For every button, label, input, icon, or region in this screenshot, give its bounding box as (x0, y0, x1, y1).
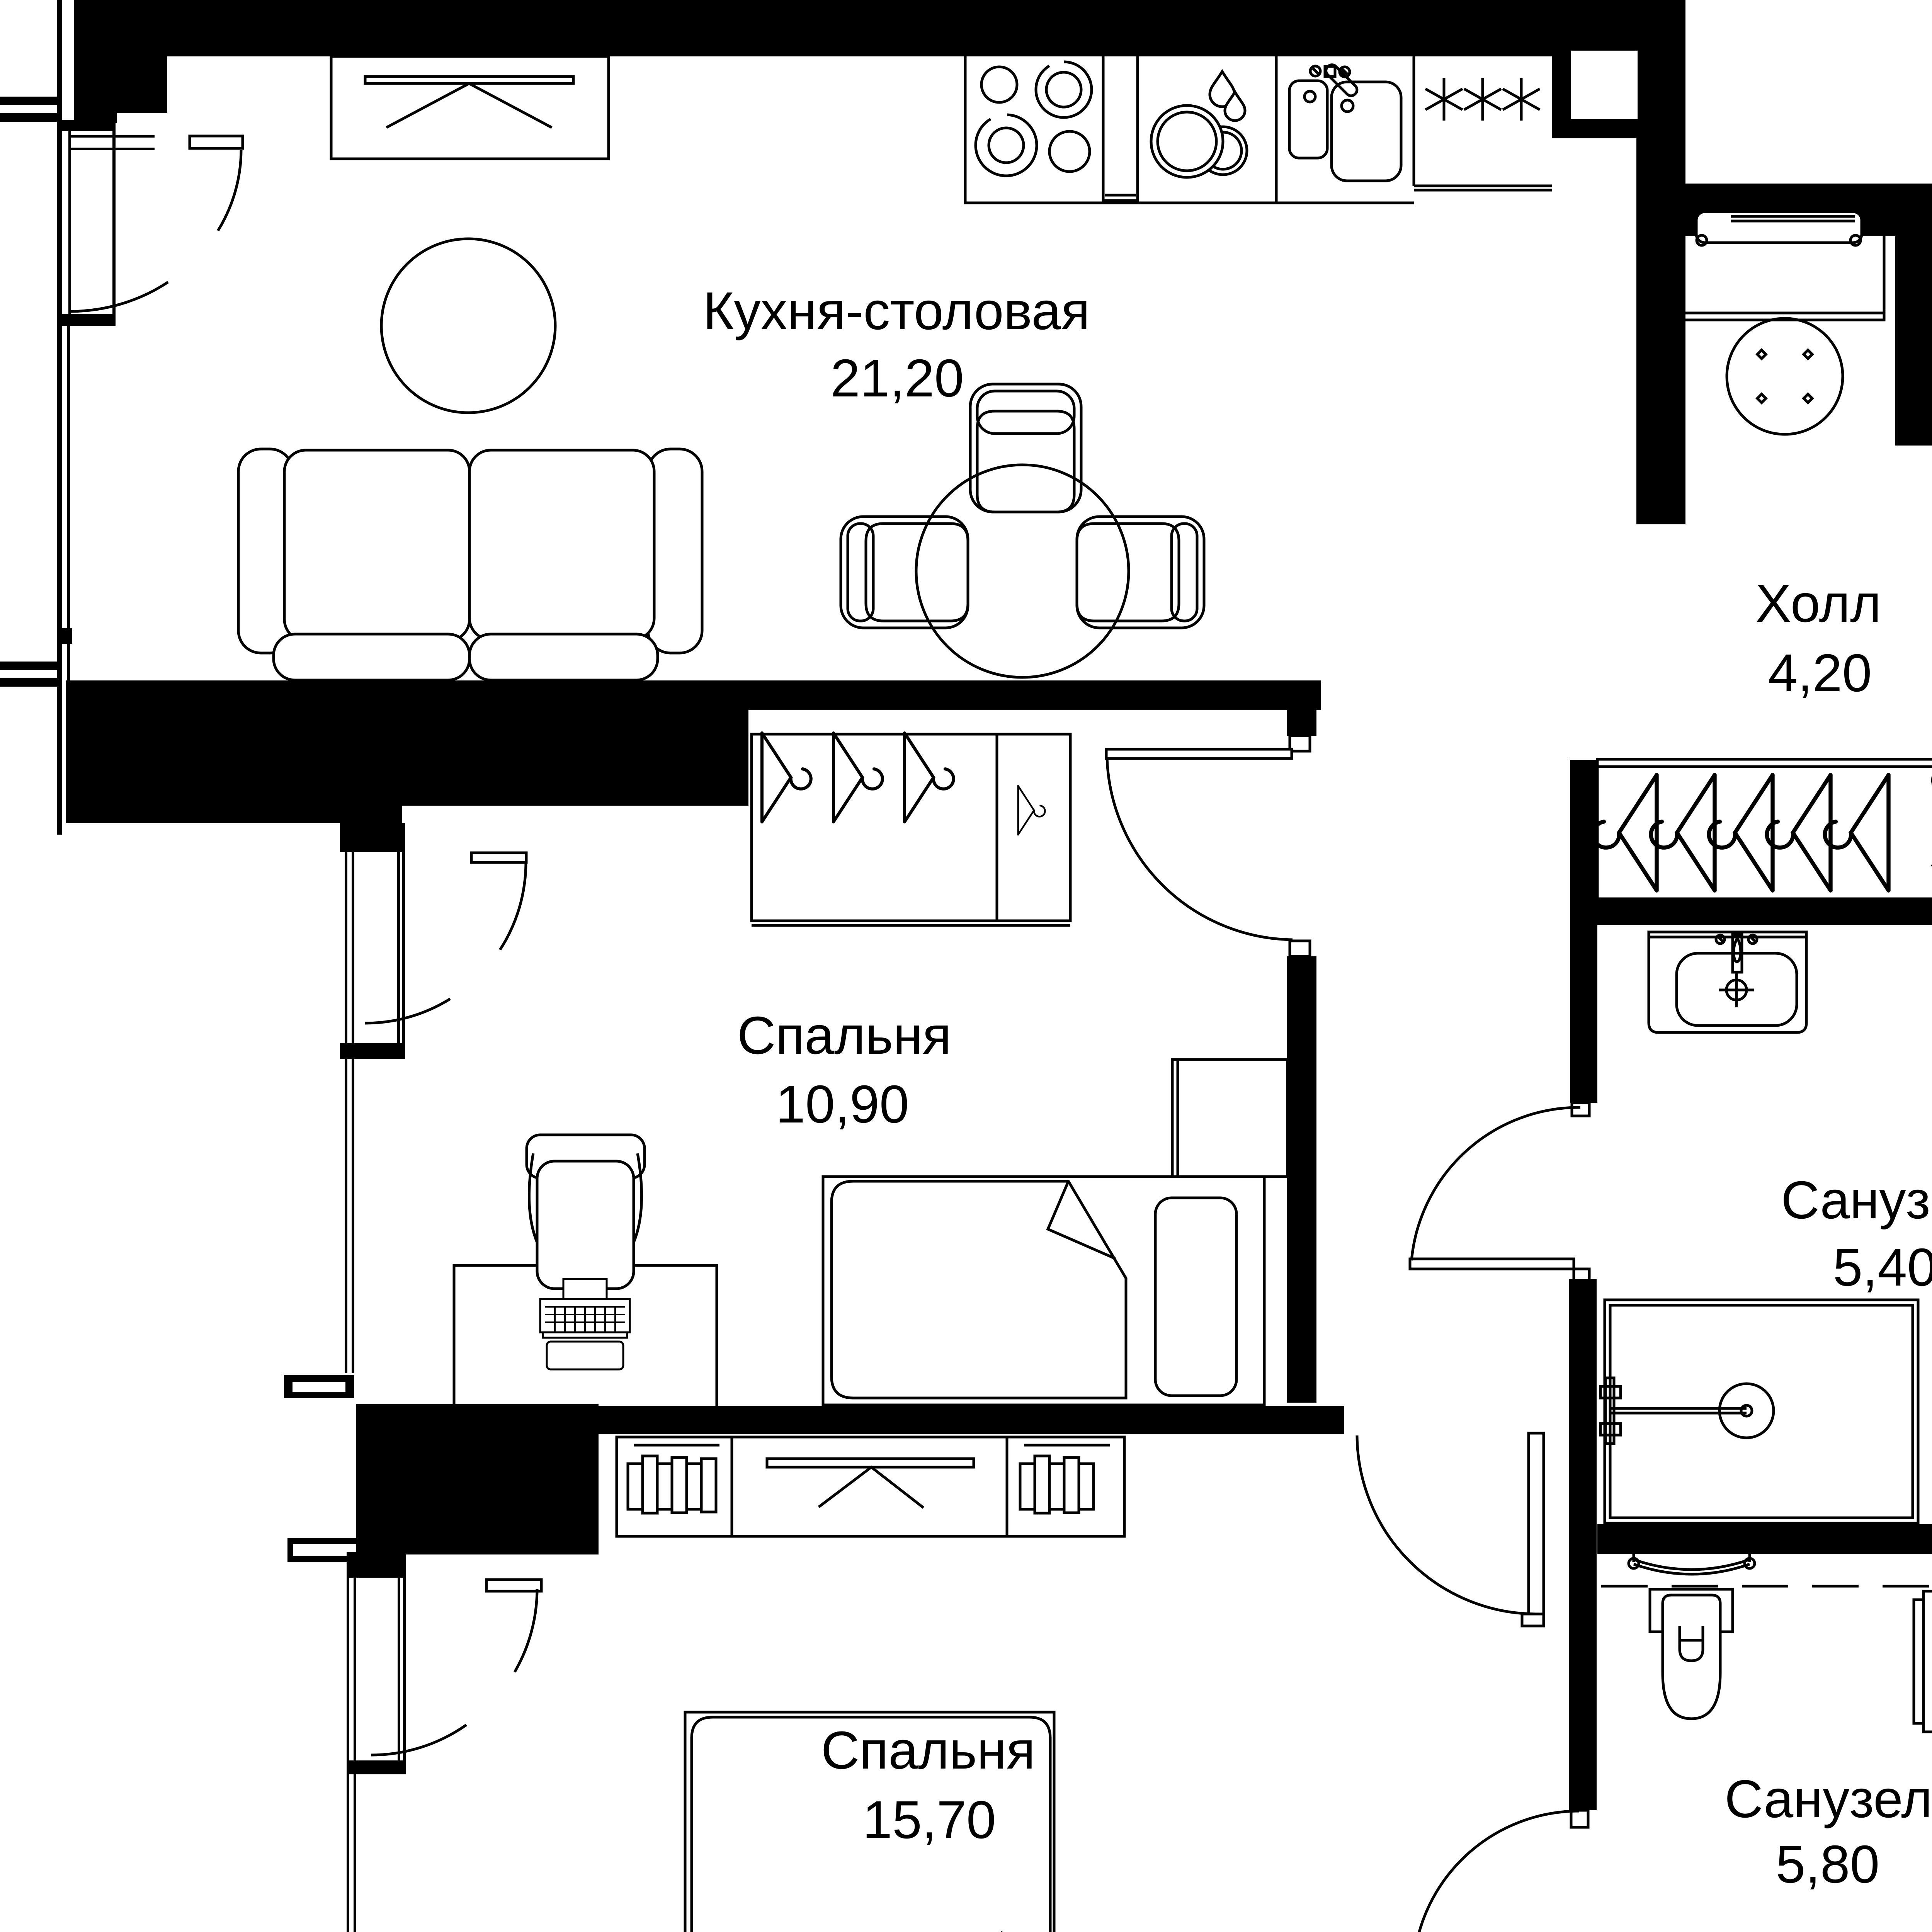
svg-text:10,90: 10,90 (776, 1075, 909, 1134)
svg-text:Спальня: Спальня (737, 1006, 952, 1065)
svg-text:21,20: 21,20 (830, 349, 964, 408)
svg-text:5,80: 5,80 (1776, 1835, 1880, 1894)
svg-text:Холл: Холл (1755, 574, 1881, 633)
svg-text:4,20: 4,20 (1768, 643, 1872, 703)
svg-text:Санузел: Санузел (1725, 1769, 1932, 1829)
svg-text:5,40: 5,40 (1833, 1238, 1932, 1297)
svg-text:Санузел: Санузел (1781, 1170, 1932, 1230)
svg-text:Кухня-столовая: Кухня-столовая (703, 281, 1090, 341)
svg-text:Спальня: Спальня (821, 1721, 1036, 1780)
svg-text:15,70: 15,70 (862, 1790, 996, 1850)
